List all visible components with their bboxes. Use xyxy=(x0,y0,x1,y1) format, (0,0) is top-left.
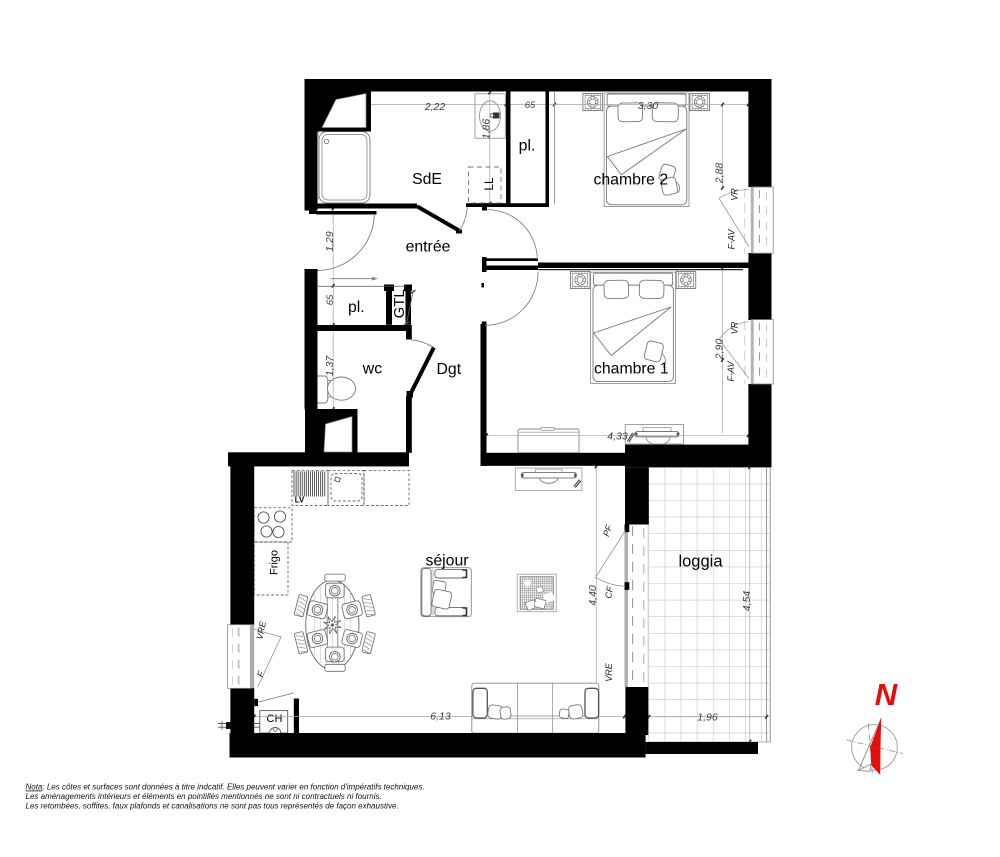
svg-text:2,90: 2,90 xyxy=(714,339,726,361)
svg-text:65: 65 xyxy=(325,294,336,305)
svg-text:6,13: 6,13 xyxy=(430,711,451,723)
svg-text:pl.: pl. xyxy=(519,138,536,155)
svg-text:1,37: 1,37 xyxy=(324,355,336,377)
svg-text:4,40: 4,40 xyxy=(587,585,599,606)
svg-text:VRE: VRE xyxy=(604,662,614,682)
svg-text:entrée: entrée xyxy=(406,239,451,256)
svg-text:1,96: 1,96 xyxy=(697,712,718,724)
svg-text:N: N xyxy=(875,677,898,712)
svg-text:Dgt: Dgt xyxy=(437,361,462,378)
svg-text:F-AV: F-AV xyxy=(727,229,737,250)
svg-text:loggia: loggia xyxy=(678,553,723,571)
svg-text:Frigo: Frigo xyxy=(269,550,281,575)
svg-text:chambre 1: chambre 1 xyxy=(594,361,669,378)
svg-text:Les aménagements intérieurs et: Les aménagements intérieurs et éléments … xyxy=(26,792,382,801)
svg-text:4,33: 4,33 xyxy=(607,430,628,442)
svg-text:65: 65 xyxy=(525,100,536,111)
svg-text:Les retombées, soffites, faux: Les retombées, soffites, faux plafonds e… xyxy=(26,802,399,811)
svg-text:2,22: 2,22 xyxy=(424,101,446,113)
svg-text:LV: LV xyxy=(295,496,305,505)
svg-text:chambre 2: chambre 2 xyxy=(594,172,669,189)
svg-text:SdE: SdE xyxy=(412,171,442,188)
svg-text:GTL: GTL xyxy=(391,289,408,318)
svg-text:pl.: pl. xyxy=(348,299,365,316)
svg-text:3,30: 3,30 xyxy=(638,100,659,112)
svg-text:CH: CH xyxy=(267,713,283,725)
svg-text:VR: VR xyxy=(730,188,740,201)
svg-text:4,54: 4,54 xyxy=(741,591,753,612)
svg-text:Nota: Les côtes et surfaces so: Nota: Les côtes et surfaces sont données… xyxy=(26,783,425,792)
svg-text:F-AV: F-AV xyxy=(726,361,736,382)
svg-text:LL: LL xyxy=(482,177,496,191)
svg-text:2,88: 2,88 xyxy=(714,163,726,185)
svg-text:séjour: séjour xyxy=(425,553,468,570)
svg-text:wc: wc xyxy=(362,361,382,378)
svg-text:VR: VR xyxy=(730,321,740,334)
svg-text:CF: CF xyxy=(603,585,615,599)
svg-text:1,29: 1,29 xyxy=(324,231,336,252)
svg-text:1,86: 1,86 xyxy=(481,119,493,140)
